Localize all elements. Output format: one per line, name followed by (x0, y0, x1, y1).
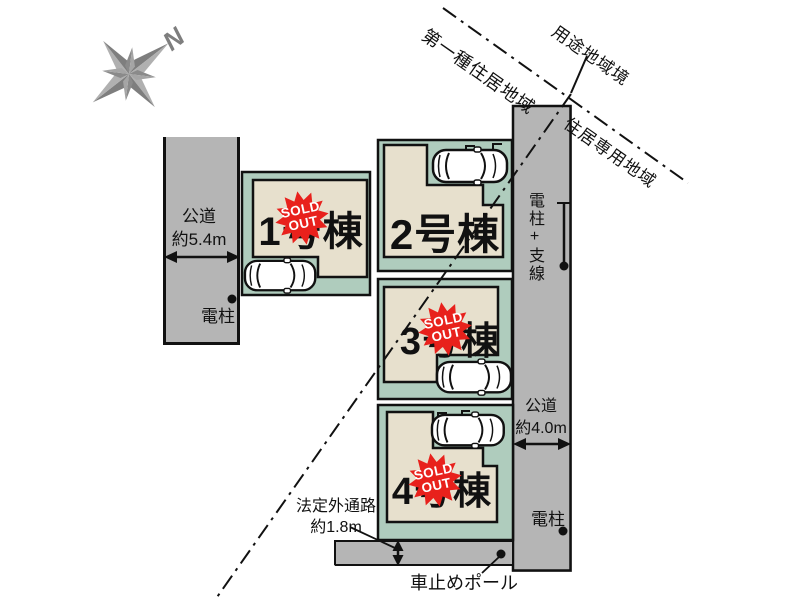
car-icon-lot2 (433, 147, 507, 185)
north-label: N (157, 21, 191, 57)
road-left-name: 公道 (158, 206, 240, 229)
site-plan: N 第一種住居地域 用途地域境 住居専用地域 公道 約5.4m 電柱 電柱+支線… (0, 0, 800, 600)
road-right-width: 約4.0m (508, 418, 574, 440)
car-stop-pole-dot (497, 550, 506, 559)
road-left-label: 公道 約5.4m (158, 206, 240, 252)
car-icon-lot4 (432, 412, 504, 448)
pole-bottom-label: 電柱 (531, 505, 565, 530)
rear-path-strip (334, 540, 512, 566)
road-right-label: 公道 約4.0m (508, 396, 574, 439)
car-stop-pole-label: 車止めポール (410, 569, 518, 595)
pole-left-label: 電柱 (201, 302, 235, 327)
lot-2-label: 2号棟 (379, 201, 511, 262)
rear-path-width: 約1.8m (280, 518, 392, 539)
road-right-name: 公道 (508, 396, 574, 418)
car-icon-lot1 (245, 258, 315, 293)
road-left-width: 約5.4m (158, 229, 240, 252)
road-right (512, 105, 572, 572)
pole-right-label: 電柱+支線 (522, 192, 546, 297)
compass-rose-icon (88, 37, 173, 112)
